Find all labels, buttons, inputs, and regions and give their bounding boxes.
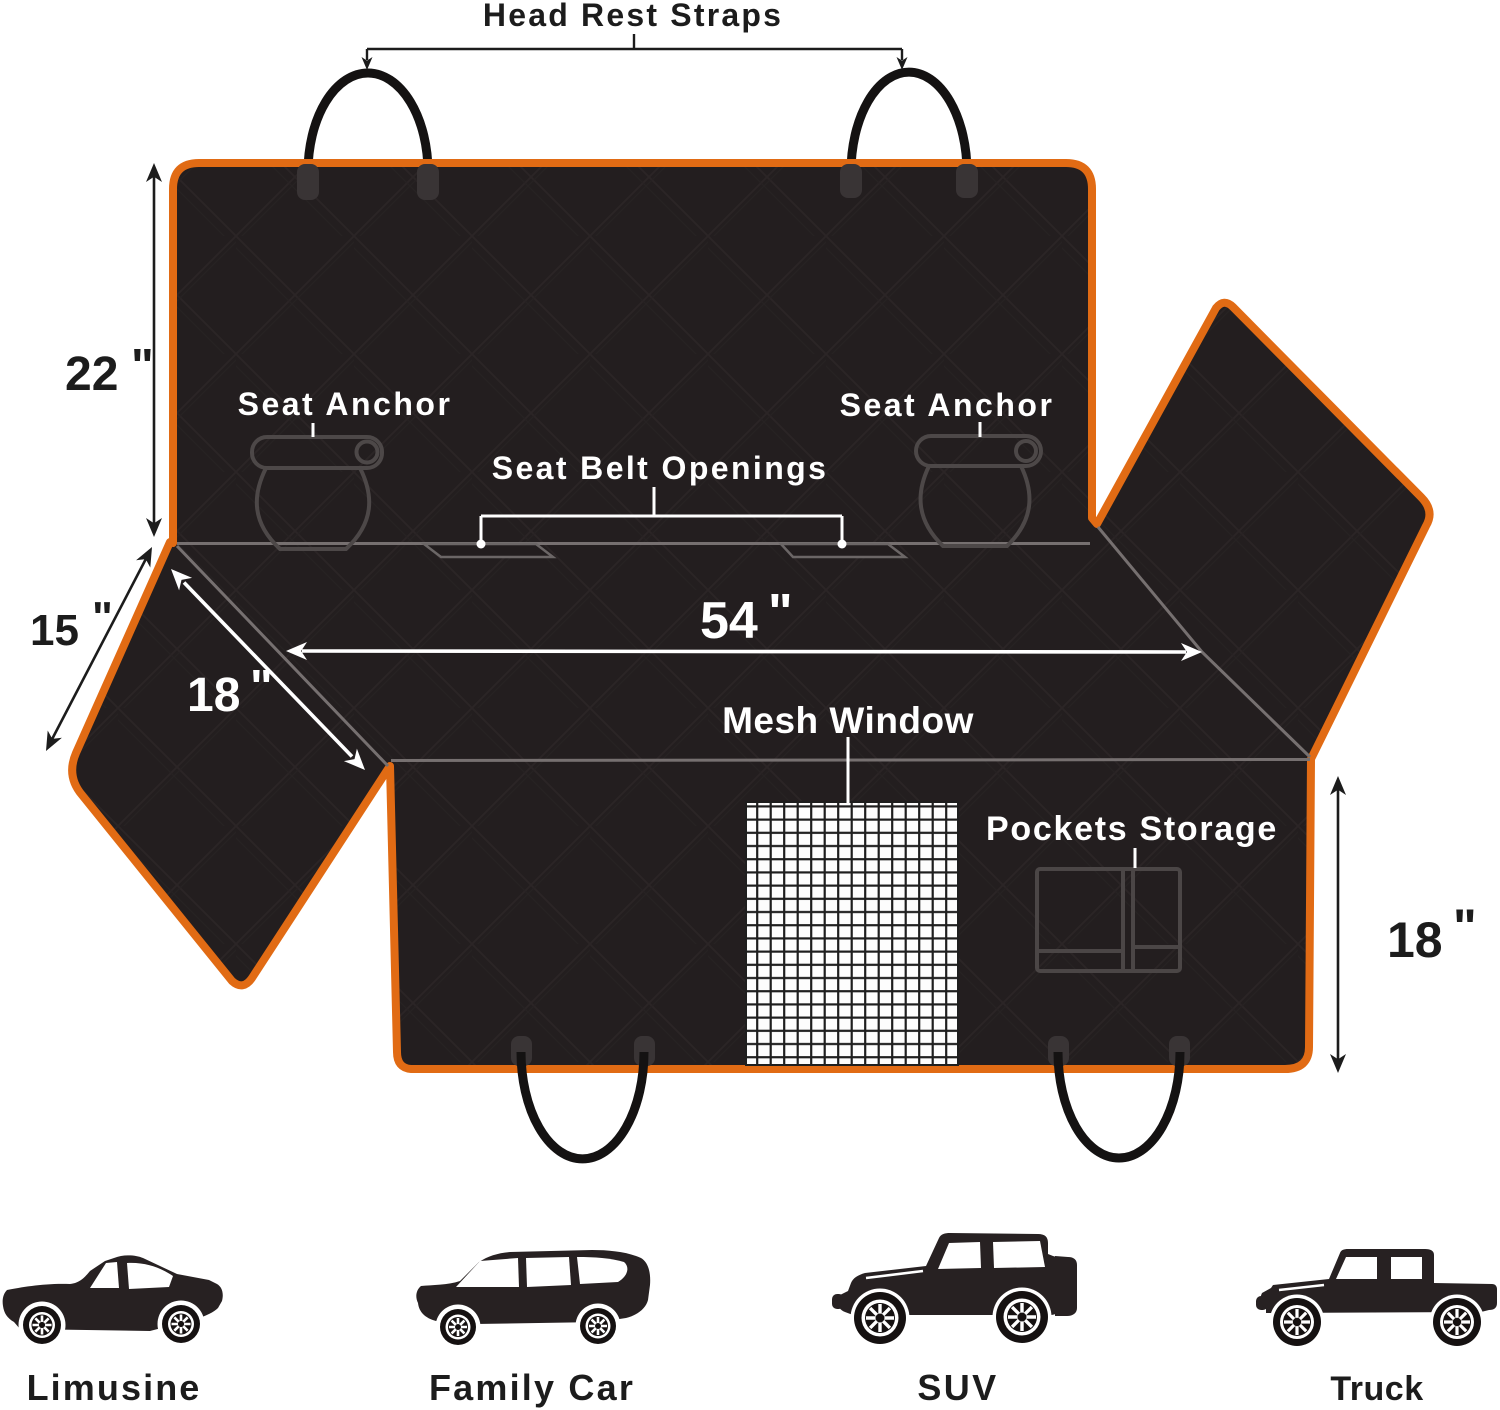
svg-text:Limusine: Limusine: [27, 1367, 202, 1408]
svg-text:54: 54: [700, 592, 758, 650]
svg-text:": ": [92, 593, 113, 642]
svg-text:": ": [131, 340, 154, 393]
svg-text:Truck: Truck: [1330, 1370, 1423, 1408]
svg-text:SUV: SUV: [917, 1367, 998, 1408]
svg-text:Seat Belt Openings: Seat Belt Openings: [492, 450, 829, 486]
svg-text:Seat Anchor: Seat Anchor: [840, 387, 1055, 423]
svg-text:Head Rest Straps: Head Rest Straps: [483, 0, 783, 33]
svg-text:": ": [768, 584, 795, 642]
svg-text:Mesh Window: Mesh Window: [722, 700, 974, 741]
svg-text:22: 22: [65, 348, 118, 401]
svg-text:18: 18: [1387, 912, 1443, 968]
svg-text:": ": [250, 661, 275, 714]
svg-text:Family Car: Family Car: [429, 1367, 635, 1408]
svg-text:Seat Anchor: Seat Anchor: [238, 386, 453, 422]
svg-text:Pockets Storage: Pockets Storage: [986, 810, 1278, 848]
svg-text:18: 18: [187, 669, 240, 722]
svg-text:": ": [1453, 899, 1477, 955]
svg-text:15: 15: [30, 606, 79, 655]
